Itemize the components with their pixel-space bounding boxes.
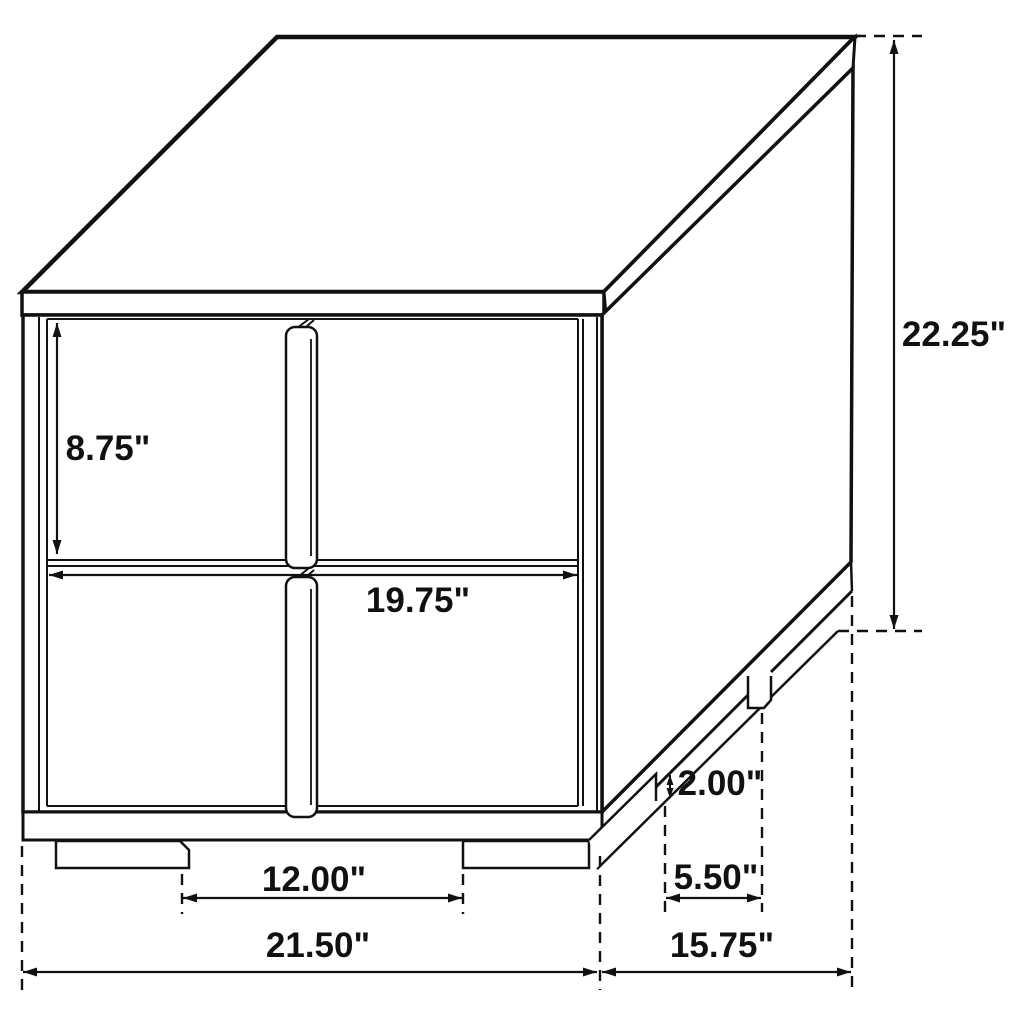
front-left-foot (56, 841, 189, 868)
furniture-dimension-diagram: 8.75" 19.75" 22.25" 2.00" 5.50" 12.00" 2… (0, 0, 1024, 1024)
front-right-foot (463, 841, 589, 868)
arrowhead-left (183, 894, 197, 903)
arrowhead-right (583, 968, 597, 977)
dim-label-drawer-height: 8.75" (66, 429, 151, 468)
plinth-side-back-edge (851, 562, 852, 591)
arrowhead-right (448, 894, 462, 903)
dim-label-overall-depth: 15.75" (670, 926, 774, 965)
top-drawer-handle (286, 319, 317, 568)
arrowhead-left (602, 968, 616, 977)
drawer-handles (286, 319, 317, 817)
arrowhead-up (890, 40, 899, 54)
dim-label-drawer-width: 19.75" (366, 581, 470, 620)
bottom-drawer-handle (286, 568, 317, 817)
top-slab-front-edge (22, 292, 604, 315)
dim-overall-depth (602, 968, 851, 977)
dim-label-foot-height: 2.00" (678, 764, 763, 803)
dim-label-front-foot-spacing: 12.00" (262, 860, 366, 899)
handle-bar (286, 577, 317, 817)
arrowhead-down (890, 615, 899, 629)
dim-label-overall-width: 21.50" (266, 926, 370, 965)
cabinet-body (22, 37, 855, 812)
dim-overall-height (890, 40, 899, 629)
arrowhead-right (837, 968, 851, 977)
dim-label-side-foot-spacing: 5.50" (674, 858, 759, 897)
arrowhead-left (23, 968, 37, 977)
dim-overall-width (23, 968, 597, 977)
dim-label-overall-height: 22.25" (902, 315, 1006, 354)
nightstand-line-drawing: 8.75" 19.75" 22.25" 2.00" 5.50" 12.00" 2… (0, 0, 1024, 1024)
handle-bar (286, 327, 317, 568)
